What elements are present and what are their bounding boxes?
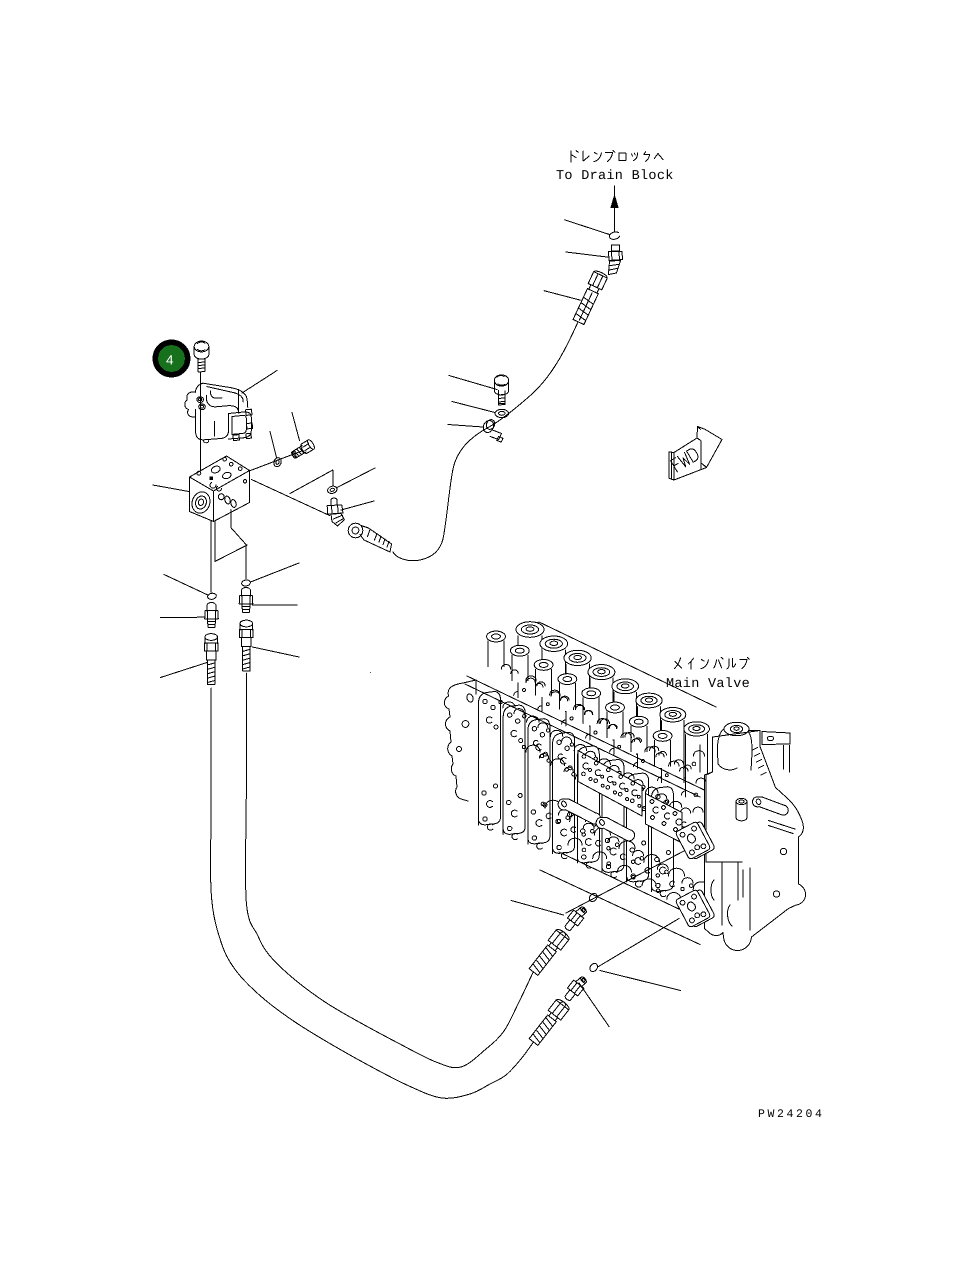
svg-text:Main Valve: Main Valve: [666, 677, 750, 692]
svg-text:4: 4: [166, 353, 174, 368]
svg-text:PW24204: PW24204: [758, 1108, 825, 1121]
svg-text:To Drain Block: To Drain Block: [556, 169, 674, 184]
